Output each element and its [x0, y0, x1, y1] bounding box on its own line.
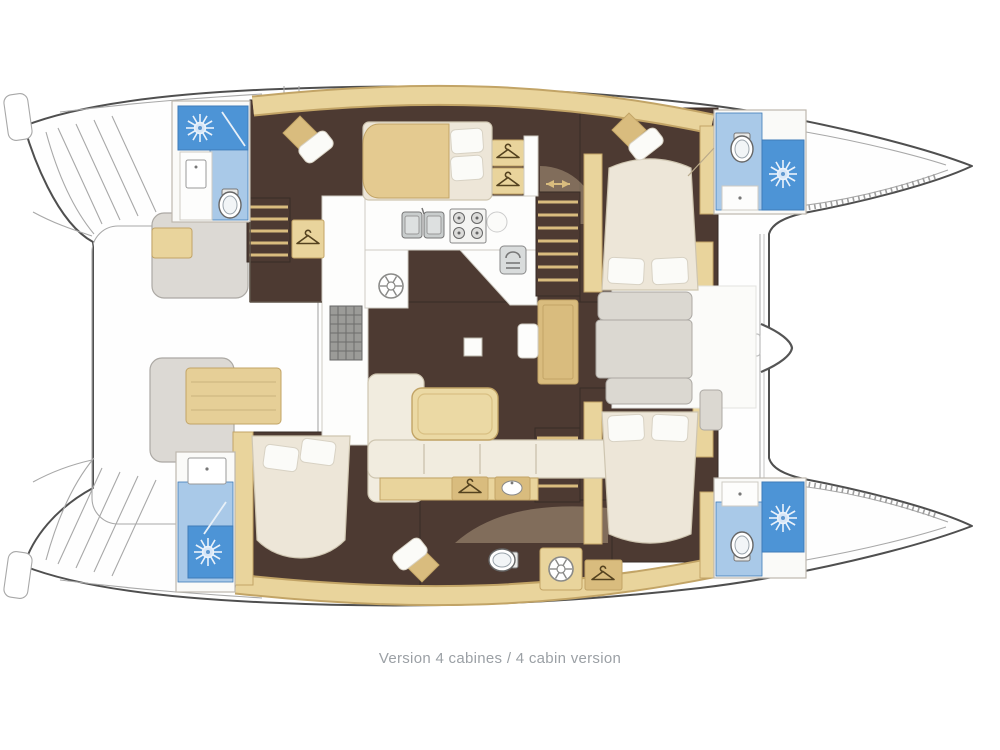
stove-icon: [450, 209, 486, 243]
bathroom-stbd-aft: [176, 452, 235, 592]
seagull-striker: [761, 324, 792, 372]
washer-icon: [379, 274, 403, 298]
forward-vanity-area: [596, 286, 756, 430]
shower-drain: [540, 548, 582, 590]
stairs-port-fwd: [536, 180, 580, 296]
floor-plan-canvas: Version 4 cabines / 4 cabin version: [0, 0, 1000, 750]
sofa-front: [368, 440, 612, 478]
bathroom-port-aft: [172, 101, 250, 222]
chart-table: [538, 300, 578, 384]
bathroom-stbd-fwd: [714, 478, 806, 578]
hatch-grille: [330, 306, 362, 360]
toilet-icon: [489, 549, 518, 571]
caption: Version 4 cabines / 4 cabin version: [379, 650, 621, 667]
washbasin-icon: [495, 477, 530, 500]
round-sink-icon: [487, 212, 507, 232]
oven-icon: [500, 246, 526, 274]
toilet-icon: [731, 133, 753, 162]
page: Version 4 cabines / 4 cabin version: [0, 0, 1000, 750]
cabin-port-fwd-bed: [602, 159, 698, 290]
cockpit-teak-mat: [186, 368, 281, 424]
compression-post: [464, 338, 482, 356]
cabin-port-aft-bed: [363, 122, 492, 200]
cockpit-table: [152, 228, 192, 258]
nav-seat: [518, 324, 538, 358]
sofa-drawer-hanger: [452, 477, 488, 500]
drain-icon: [549, 557, 573, 581]
stairs-port-aft: [247, 198, 290, 262]
toilet-icon: [219, 189, 241, 218]
cabin-stbd-fwd-bed: [602, 412, 698, 543]
toilet-icon: [731, 532, 753, 561]
cabin-stbd-aft-bed: [252, 436, 350, 558]
salon-table: [412, 388, 498, 440]
